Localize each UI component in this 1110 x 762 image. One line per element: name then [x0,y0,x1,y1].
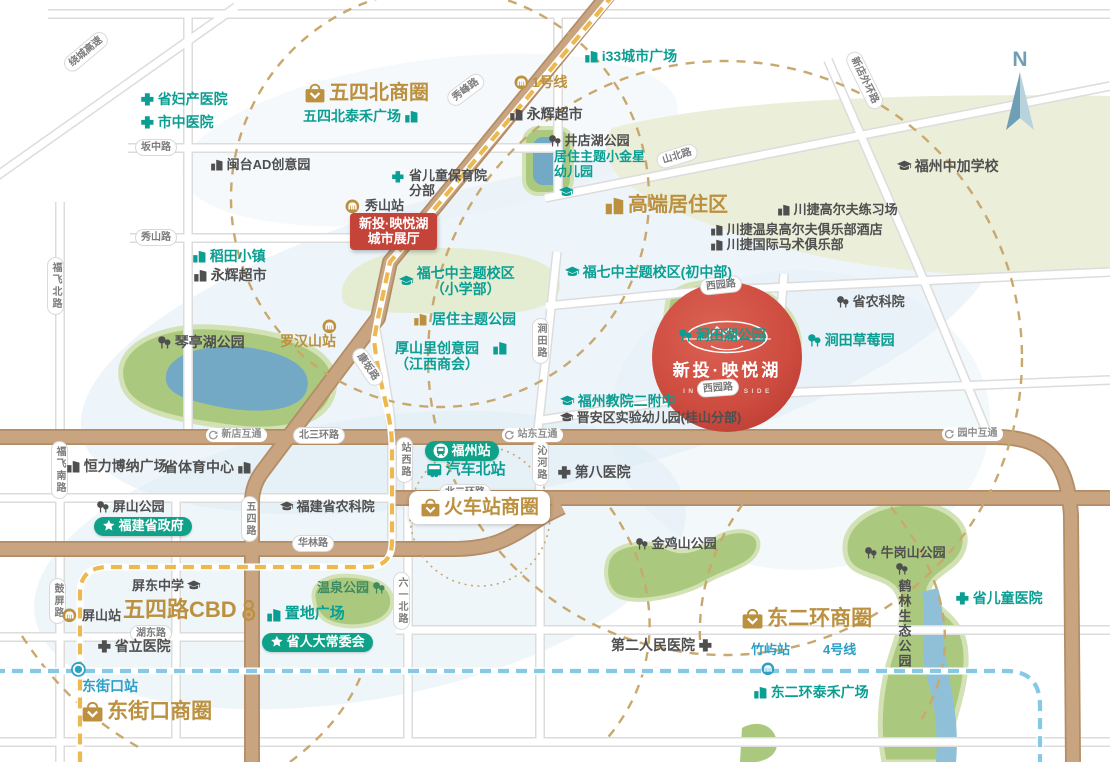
poi-prov-sports-center: 省体育中心 [164,460,252,476]
bldg-icon [66,459,81,474]
label-text: 井店湖公园 [565,134,630,149]
cap-icon [280,500,294,514]
interchange-xindian: 新店互通 [206,428,267,442]
poi-jingdianhu-park: 井店湖公园 [548,134,630,149]
poi-mintai-ad-creative-park: 闽台AD创意园 [210,158,310,173]
station-xiushan: 秀山站 [365,199,404,214]
poi-wenquan-park: 温泉公园 [317,581,386,596]
label-text: 省儿童医院 [973,591,1043,607]
road-label-qinhe: 沁河路 [532,440,549,486]
label-text: 川捷国际马术俱乐部 [727,238,844,253]
poi-prov-children-hospital: 省儿童医院 [955,591,1043,607]
label-text: 置地广场 [285,606,345,623]
label-text: 竹屿站 [751,643,790,658]
train-icon [433,443,449,459]
poi-yonghui-market-west: 永辉超市 [193,268,267,284]
bag-icon [81,700,104,723]
poi-chuanjie-hotspring-golf-hotel: 川捷温泉高尔夫俱乐部酒店 [710,223,883,238]
junction-icon [70,661,87,678]
road-label-xiushan: 秀山路 [135,229,177,246]
road-label-banzhong: 坂中路 [135,139,177,156]
cap-icon [897,159,912,174]
bag-icon [741,607,764,630]
metro-icon [514,75,529,90]
bldg-icon [492,340,508,356]
icon-juzhu-theme-park [413,312,428,327]
bldg-icon [266,607,282,623]
bldg-icon [753,685,768,700]
label-text: 牛岗山公园 [881,546,946,561]
label-text: 省儿童保育院分部 [409,169,487,198]
label-text: 涧田草莓园 [825,333,895,349]
station-luohanshan: 罗汉山站 [280,334,336,350]
inter-icon [504,430,515,441]
metro-icon [62,608,77,623]
road-label-zhanxi: 站西路 [396,437,413,483]
label-text: 第八医院 [575,465,631,481]
poi-i33-city-plaza: i33城市广场 [584,49,677,65]
label-text: 东街口商圈 [107,700,212,724]
tree-icon [157,335,172,350]
gov-fujian-provincial: 福建省政府 [94,517,192,536]
cap-icon [559,185,574,200]
poi-yonghui-market-north: 永辉超市 [509,107,583,123]
icon-baoyuyuan-cross [391,170,405,184]
poi-jiantianhu-park: 涧田湖公园 [678,328,766,344]
star-icon [102,519,116,533]
label-text: 五四北泰禾广场 [303,109,401,125]
label-text: 金鸡山公园 [652,537,717,552]
label-text: 温泉公园 [317,581,369,596]
showroom-box: 新投·映悦湖城市展厅 [350,213,437,250]
label-text: 北三环路 [299,428,339,443]
bldg-icon [413,312,428,327]
label-text: 坂中路 [141,140,171,155]
label-text: 新投·映悦湖城市展厅 [359,217,428,246]
label-text: 闽台AD创意园 [227,158,311,173]
label-text: 东二环泰禾广场 [771,685,869,701]
cross-icon [955,591,970,606]
compass-north-icon: N [988,46,1052,138]
label-text: 鹤林生态公园 [896,579,911,669]
poi-children-care-institute: 省儿童保育院分部 [409,169,487,198]
poi-zhidi-plaza: 置地广场 [266,606,345,623]
cap-icon [187,579,201,593]
label-text: 1号线 [532,75,568,91]
label-text: 西园路 [702,380,733,397]
label-text: 新店互通 [222,428,262,442]
interchange-yuanzhong: 园中互通 [942,427,1003,441]
poi-prov-agri-academy: 省农科院 [836,295,905,310]
poi-jiantian-strawberry-farm: 涧田草莓园 [807,333,895,349]
label-text: 晋安区实验幼儿园(桂山分部) [577,411,742,426]
metro-icon [345,199,360,214]
road-label-liuyi-north: 六一北路 [393,572,410,630]
bldg-icon [710,223,724,237]
label-text: 省农科院 [853,295,905,310]
icon-luohanshan-metro [322,319,337,334]
tree-icon [96,500,110,514]
label-text: 恒力博纳广场 [84,459,168,475]
label-text: 省妇产医院 [158,92,228,108]
label-text: 秀山站 [365,199,404,214]
cross-icon [140,115,155,130]
project-name: 新投·映悦湖 [673,360,782,380]
label-text: 屏山站 [82,609,121,624]
bldg-icon [604,195,625,216]
bldg-icon [192,249,207,264]
bldg-icon [509,107,524,122]
label-text: 省人大常委会 [287,635,365,650]
station-dongjiekou: 东街口站 [82,679,138,695]
label-text: 站西路 [398,442,411,478]
poi-provincial-maternity-hospital: 省妇产医院 [140,92,228,108]
bus-icon [426,462,443,479]
label-text: 省体育中心 [164,460,234,476]
bldg-icon [777,203,791,217]
label-text: 福州中加学校 [915,159,999,175]
poi-jinjishan-park: 金鸡山公园 [635,537,717,552]
icon-zhuyu-station-metro [761,662,775,676]
compass-n-label: N [1012,48,1027,71]
gov-prov-peoples-congress: 省人大常委会 [262,633,373,652]
label-text: 厚山里创意园（江西商会） [395,341,479,372]
school-fujiaoyuan-erfuzhong: 福州教院二附中 [560,394,676,410]
label-text: 秀山路 [141,230,171,245]
school-fuqizhong-primary: 福七中主题校区（小学部） [399,266,515,297]
label-text: 涧田路 [534,323,547,359]
tree-icon [807,333,822,348]
icon-houshanli-bldg [492,340,508,356]
poi-chuanjie-equestrian-club: 川捷国际马术俱乐部 [710,238,844,253]
label-text: 永辉超市 [211,268,267,284]
label-text: 屏山公园 [113,500,165,515]
interchange-zhandong: 站东互通 [502,428,563,442]
label-text: 五四北商圈 [329,82,429,104]
label-text: 六一北路 [395,577,408,625]
bldg-icon [193,268,208,283]
poi-shengli-hospital: 省立医院 [97,639,171,655]
poi-city-tcm-hospital: 市中医院 [140,115,214,131]
tree-icon [895,562,909,576]
poi-niugangshan-park: 牛岗山公园 [864,546,946,561]
cap-icon [560,394,575,409]
cbd-icon [240,599,258,621]
poi-no8-hospital: 第八医院 [557,465,631,481]
label-text: 稻田小镇 [210,249,266,265]
label-text: 永辉超市 [527,107,583,123]
label-text: 居住主题小金星幼儿园 [554,150,645,179]
icon-pingshan-station-metro [62,608,77,623]
bldg-icon [210,158,224,172]
poi-fuzhou-sino-canada-school: 福州中加学校 [897,159,999,175]
bag-icon [420,497,441,518]
tree-icon [372,581,386,595]
poi-dongerhuan-taihe-plaza: 东二环泰禾广场 [753,685,869,701]
label-text: i33城市广场 [602,49,677,65]
school-pingdong: 屏东中学 [132,579,201,594]
bldg-icon [710,238,724,252]
label-text: 站东互通 [518,428,558,442]
label-text: 高端居住区 [628,194,728,216]
bldg-icon [584,49,599,64]
metro-icon [761,662,775,676]
biz-dongjiekou: 东街口商圈 [81,700,212,724]
icon-helin-tree [895,562,909,576]
label-text: 沁河路 [534,445,547,481]
icon-xiushan-station-metro [345,199,360,214]
label-text: 第二人民医院 [611,638,695,654]
label-text: 川捷高尔夫练习场 [794,203,898,218]
tree-icon [864,546,878,560]
poi-hengli-bona-plaza: 恒力博纳广场 [66,459,168,475]
station-zhuyu: 竹屿站 [751,643,790,658]
label-text: 涧田湖公园 [696,328,766,344]
label-text: 华林路 [298,536,328,551]
cap-icon [565,265,580,280]
road-label-xiyuan-south: 西园路 [696,378,739,398]
label-text: 福州站 [452,444,491,459]
station-pingshan: 屏山站 [82,609,121,624]
poi-daotian-town: 稻田小镇 [192,249,266,265]
poi-qintinghu-park: 琴亭湖公园 [157,335,245,351]
biz-railway-station: 火车站商圈 [409,491,550,524]
cross-icon [97,639,112,654]
biz-wusilu-cbd: 五四路CBD [123,598,257,623]
poi-wusibei-taihe-plaza: 五四北泰禾广场 [303,109,419,125]
label-text: 福飞南路 [53,446,66,494]
cap-icon [560,411,574,425]
label-text: 东二环商圈 [767,607,872,631]
label-text: 市中医院 [158,115,214,131]
inter-icon [944,429,955,440]
label-text: 汽车北站 [446,462,506,479]
label-text: 琴亭湖公园 [175,335,245,351]
school-fuqizhong-junior: 福七中主题校区(初中部) [565,265,732,281]
label-text: 福建省政府 [119,519,184,534]
label-text: 省立医院 [115,639,171,655]
school-fujian-agri-academy: 福建省农科院 [280,500,375,515]
road-label-jiantian: 涧田路 [532,318,549,364]
metro-line1-label: 1号线 [514,75,567,91]
star-icon [270,635,284,649]
road-label-north-3rd-ring: 北三环路 [293,427,345,444]
label-text: 东街口站 [82,679,138,695]
cross-icon [557,465,572,480]
cross-icon [698,638,713,653]
bldg-icon [237,460,252,475]
area-highend-residential: 高端居住区 [604,194,728,216]
location-map: 新投·映悦湖 IN CHILL SIDE N 绕城高速坂中路秀山路秀峰路山北路新… [0,0,1110,762]
bldg-icon [404,109,419,124]
label-text: 五四路 [243,501,256,537]
road-label-fufei-north: 福飞北路 [47,257,64,315]
road-label-wusi: 五四路 [241,496,258,542]
tree-icon [836,295,850,309]
label-text: 福七中主题校区(初中部) [583,265,732,281]
tree-icon [635,537,649,551]
label-text: 福飞北路 [49,262,62,310]
poi-juzhu-theme-park: 居住主题公园 [432,312,516,328]
bag-icon [304,82,326,104]
biz-dongerhuan: 东二环商圈 [741,607,872,631]
poi-chuanjie-golf-range: 川捷高尔夫练习场 [777,203,898,218]
label-text: 福建省农科院 [297,500,375,515]
metro-icon [322,319,337,334]
poi-houshanli-creative-park: 厚山里创意园（江西商会） [395,341,479,372]
label-text: 屏东中学 [132,579,184,594]
cap-icon [399,274,414,289]
metro-line4-label: 4号线 [823,643,856,658]
inter-icon [208,430,219,441]
label-text: 罗汉山站 [280,334,336,350]
cross-icon [140,92,155,107]
tree-icon [548,134,562,148]
label-text: 川捷温泉高尔夫俱乐部酒店 [727,223,883,238]
icon-xiaojinxing-cap [559,185,574,200]
station-north-bus: 汽车北站 [426,462,506,479]
poi-xiaojinxing-kindergarten: 居住主题小金星幼儿园 [554,150,645,179]
label-text: 五四路CBD [123,598,237,623]
label-text: 福州教院二附中 [578,394,676,410]
cross-icon [391,170,405,184]
label-text: 园中互通 [958,427,998,441]
station-fuzhou-railway: 福州站 [425,441,499,461]
icon-dongjiekou-junction [70,661,87,678]
label-text: 4号线 [823,643,856,658]
poi-pingshan-park: 屏山公园 [96,500,165,515]
poi-no2-peoples-hospital: 第二人民医院 [611,638,713,654]
label-text: 福七中主题校区（小学部） [417,266,515,297]
school-jinan-exp-kindergarten: 晋安区实验幼儿园(桂山分部) [560,411,741,426]
biz-wusibei: 五四北商圈 [304,82,429,104]
road-label-hualin: 华林路 [292,535,334,552]
label-text: 火车站商圈 [444,497,539,518]
tree-icon [678,328,693,343]
label-text: 居住主题公园 [432,312,516,328]
poi-helin-eco-park: 鹤林生态公园 [896,579,911,669]
